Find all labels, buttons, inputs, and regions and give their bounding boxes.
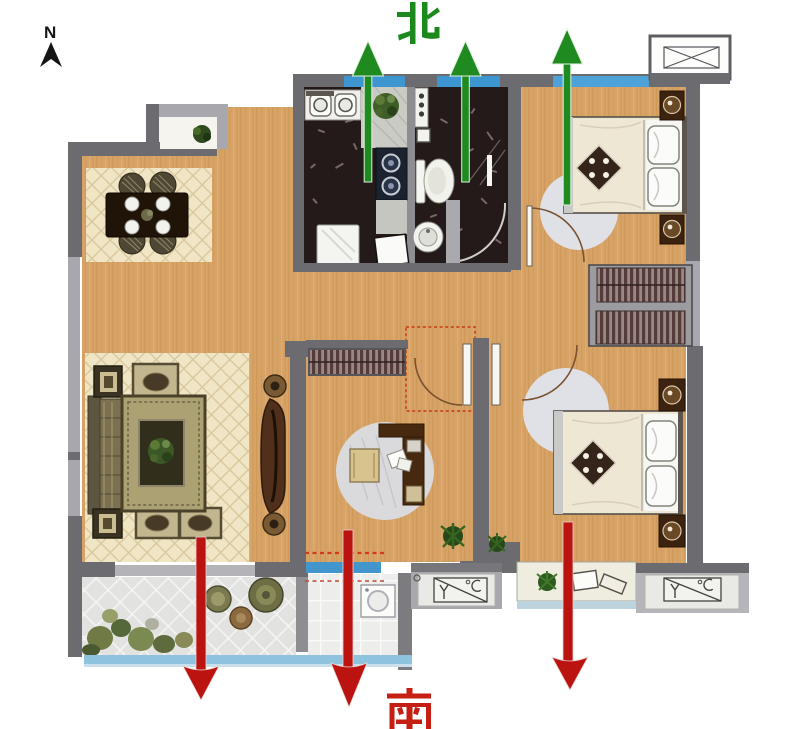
svg-text:N: N [44, 23, 56, 42]
